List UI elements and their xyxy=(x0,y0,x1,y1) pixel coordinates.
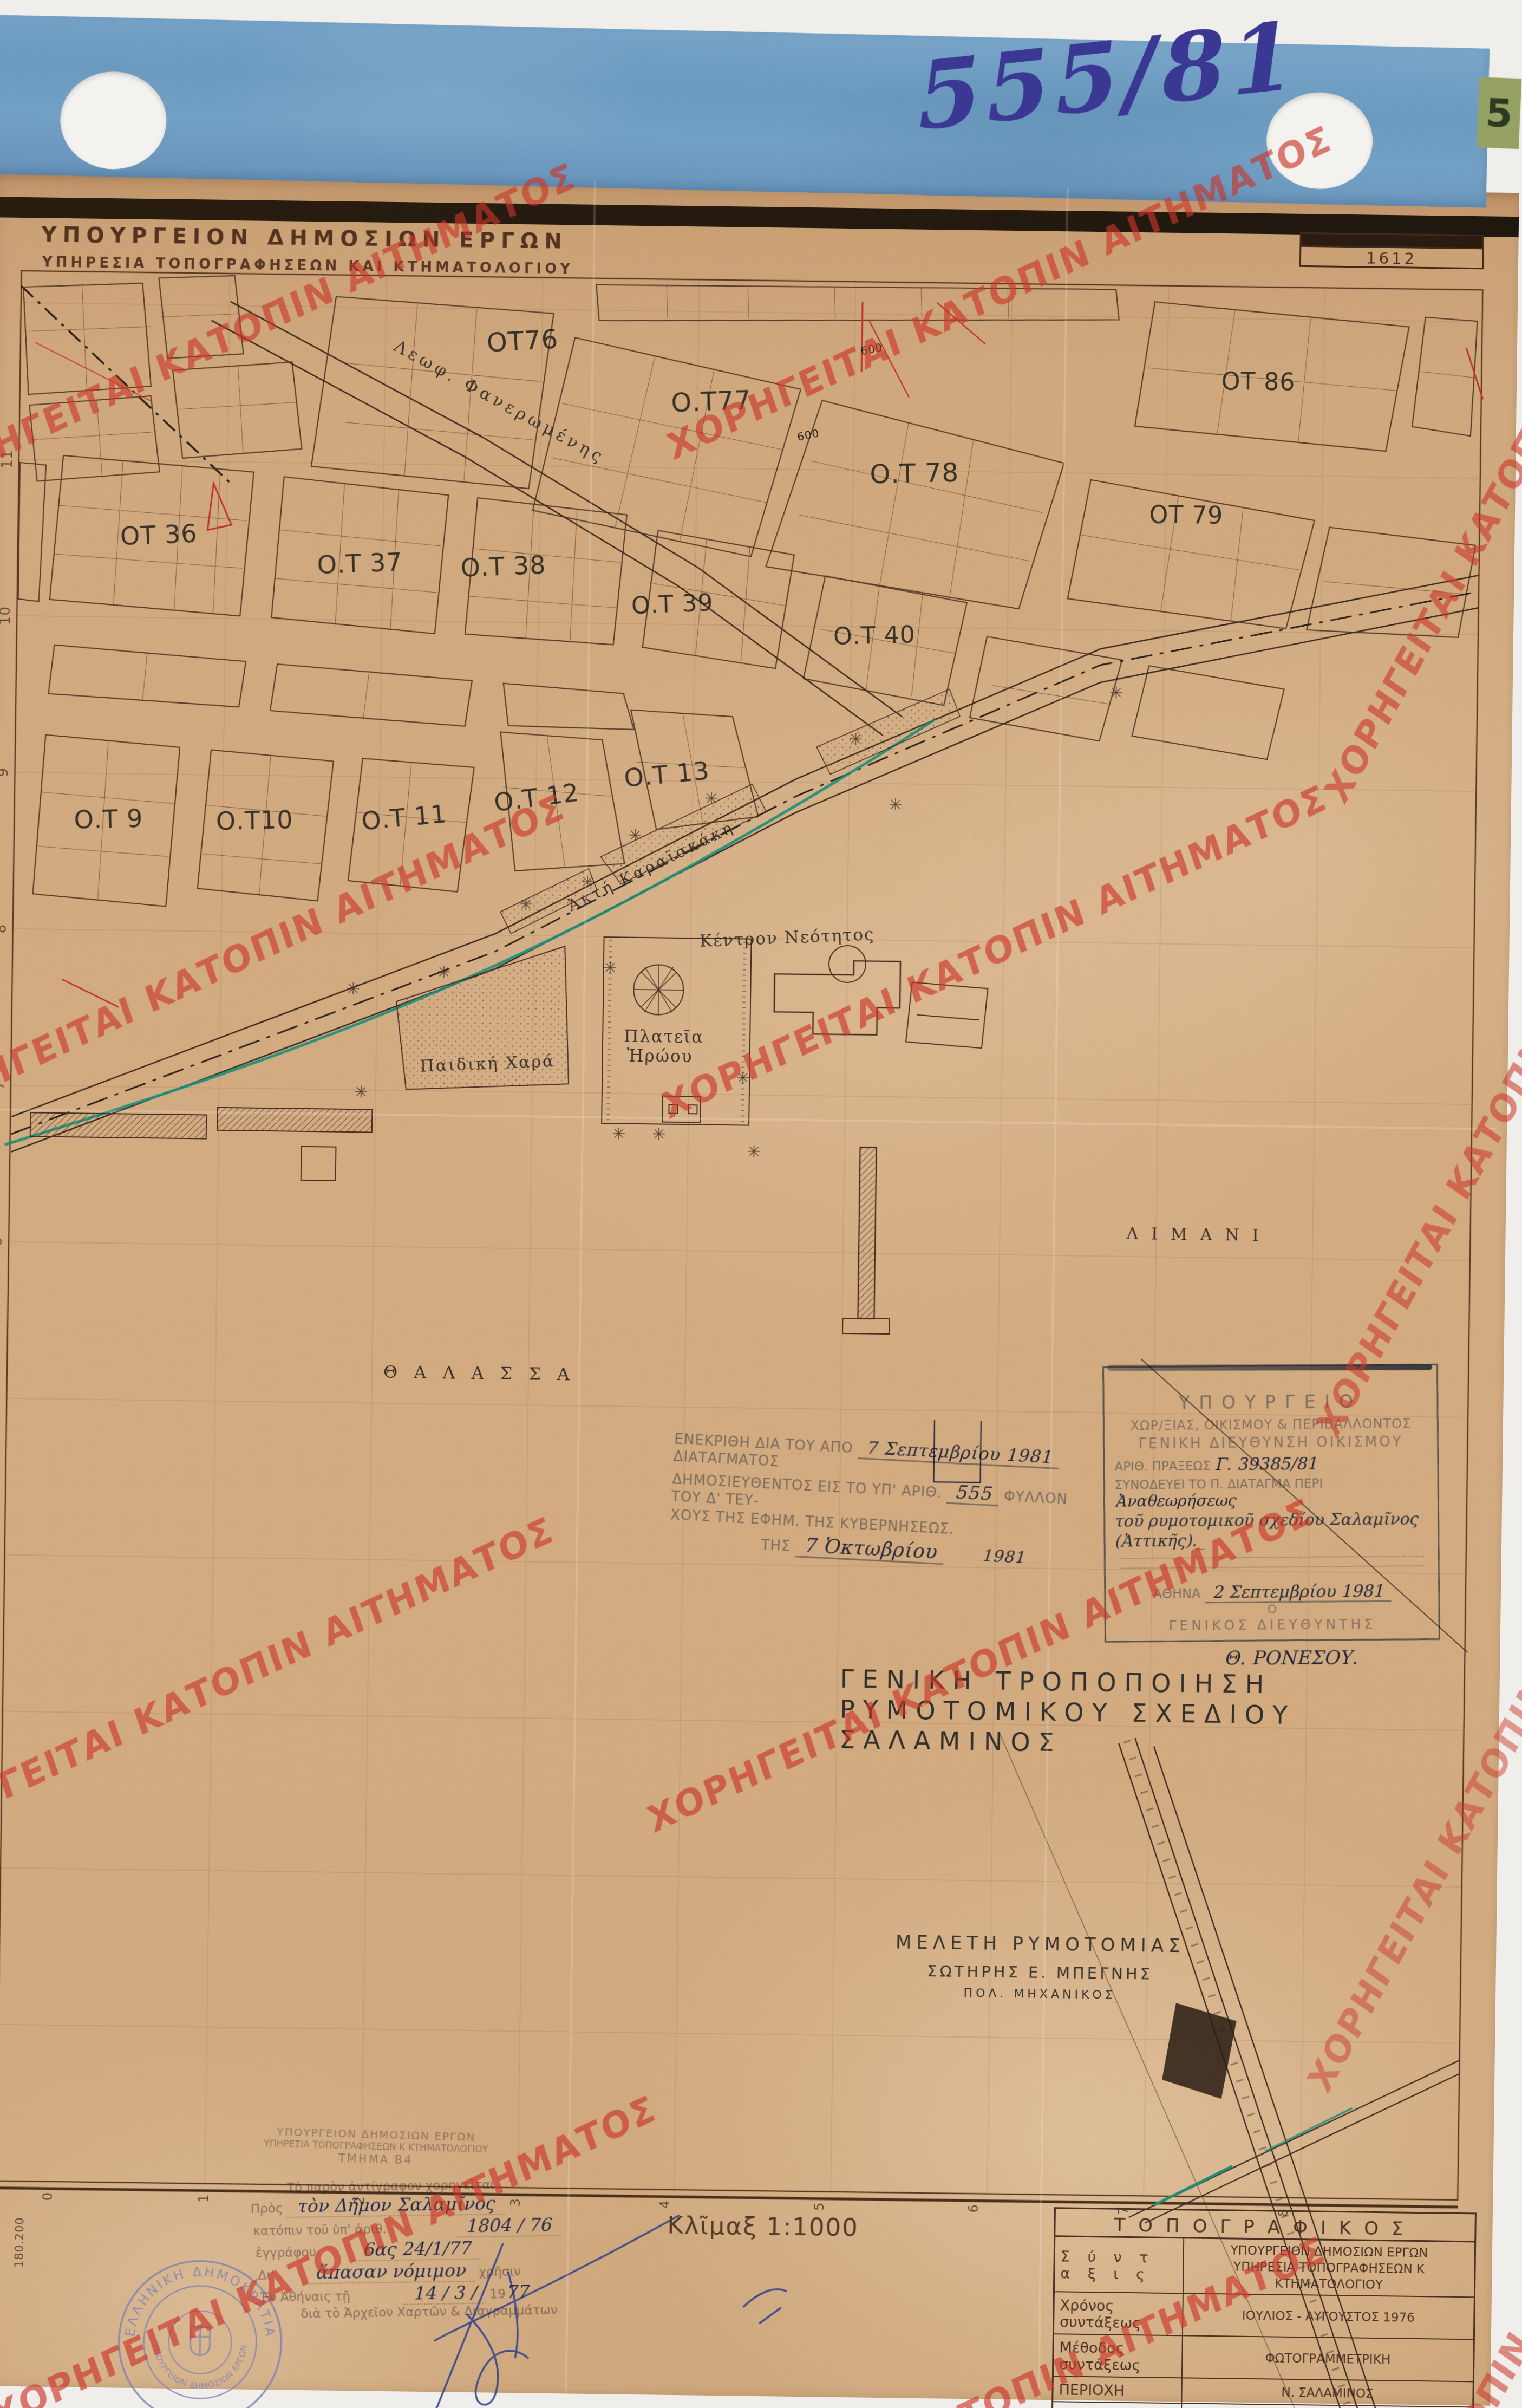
approval-stamp: ΕΝΕΚΡΙΘΗ ΔΙΑ ΤΟΥ ΑΠΟ 7 Σεπτεμβρίου 1981 … xyxy=(669,1427,1086,1572)
grid-number-left: 4 xyxy=(0,1550,1,1559)
grid-number-left: 8 xyxy=(0,924,9,934)
stamp-title: ΥΠΟΥΡΓΕΙΟ xyxy=(1104,1390,1436,1414)
table-row-label: Χρόνος συντάξεως xyxy=(1054,2292,1184,2335)
handwritten-gazette-number: 555 xyxy=(946,1480,1000,1506)
director-signature: Θ. ΡΟΝΕΣΟΥ. xyxy=(1224,1646,1357,1669)
grid-number-left: 11 xyxy=(0,450,15,468)
handwritten-date: 14 / 3 / xyxy=(403,2282,486,2305)
map-paper xyxy=(0,173,1519,2406)
grid-number-left: 7 xyxy=(0,1081,7,1090)
block-label: Ο.Τ 78 xyxy=(870,457,959,490)
block-label: Ο.Τ 9 xyxy=(74,804,143,835)
table-row: Σ ύ ν τ α ξ ι ςΥΠΟΥΡΓΕΙΟΝ ΔΗΜΟΣΙΩΝ ΕΡΓΩΝ… xyxy=(1055,2237,1474,2298)
form-text: Δι' xyxy=(258,2268,274,2282)
form-text: Πρὸς xyxy=(251,2201,283,2216)
form-text: ἐγγράφου xyxy=(256,2245,316,2260)
scanned-map-document: 555/81 5 ΥΠΟΥΡΓΕΙΟΝ ΔΗΜΟΣΙΩΝ ΕΡΓΩΝ ΥΠΗΡΕ… xyxy=(0,0,1522,2408)
stamp-city-label: ΑΘΗΝΑ xyxy=(1153,1586,1201,1602)
hole-punch-left-icon xyxy=(59,70,167,170)
form-text: 19 xyxy=(489,2287,506,2301)
sheet-code-box: 1612 xyxy=(1299,232,1484,269)
block-label: Ο.Τ 38 xyxy=(460,550,546,583)
place-label: ΛΙΜΑΝΙ xyxy=(1126,1223,1271,1245)
stamp-label: ΣΥΝΟΔΕΥΕΙ ΤΟ Π. ΔΙΑΤΑΓΜΑ ΠΕΡΙ xyxy=(1115,1476,1323,1492)
grid-number-left: 9 xyxy=(0,767,11,777)
stamp-article: Ο xyxy=(1106,1601,1438,1617)
stamp-line: ΧΩΡ/ΞΙΑΣ, ΟΙΚΙΣΜΟΥ & ΠΕΡΙΒΑΛΛΟΝΤΟΣ xyxy=(1105,1416,1437,1434)
table-row-value: ΙΟΥΛΙΟΣ - ΑΥΓΟΥΣΤΟΣ 1976 xyxy=(1183,2294,1474,2339)
table-row-label: ΠΕΡΙΟΧΗ xyxy=(1053,2377,1183,2403)
handwritten-subject: (Ἀττικῆς)._ xyxy=(1105,1529,1438,1551)
place-label: Πλατεῖα xyxy=(624,1026,704,1047)
info-table: ΤΟΠΟΓΡΑΦΙΚΟΣ ΧΑΡΤΗΣ Σ ύ ν τ α ξ ι ςΥΠΟΥΡ… xyxy=(1051,2207,1477,2408)
handwritten-stamp-date: 2 Σεπτεμβρίου 1981 xyxy=(1205,1581,1391,1604)
table-row: Μέθοδος συντάξεωςΦΩΤΟΓΡΑΜΜΕΤΡΙΚΗ xyxy=(1054,2334,1473,2382)
corner-tab: 5 xyxy=(1477,77,1521,149)
grid-number-bottom: 0 xyxy=(40,2192,55,2201)
engineer-name: ΣΩΤΗΡΗΣ Ε. ΜΠΕΓΝΗΣ xyxy=(812,1960,1267,1984)
form-text: Τὸ παρὸν ἀντίγραφον χορηγεῖται xyxy=(287,2177,494,2195)
corner-tab-number: 5 xyxy=(1485,90,1514,136)
handwritten-recipient: τὸν Δῆμον Σαλαμῖνος xyxy=(286,2192,504,2218)
grid-number-bottom: 6 xyxy=(966,2204,981,2213)
coordinate-label: 180.200 xyxy=(12,2217,26,2268)
grid-number-left: 6 xyxy=(0,1237,5,1247)
form-text: Ἐν Ἀθήναις τῇ xyxy=(260,2289,350,2304)
department-stamp: ΥΠΟΥΡΓΕΙΟΝ ΔΗΜΟΣΙΩΝ ΕΡΓΩΝ ΥΠΗΡΕΣΙΑ ΤΟΠΟΓ… xyxy=(262,2125,490,2169)
block-label: ΟΤ 86 xyxy=(1221,367,1296,395)
handwritten-subject: τοῦ ρυμοτομικοῦ σχεδίου Σαλαμῖνος xyxy=(1105,1509,1438,1531)
stamp-director-label: ΓΕΝΙΚΟΣ ΔΙΕΥΘΥΝΤΗΣ xyxy=(1106,1616,1439,1634)
grid-number-bottom: 5 xyxy=(812,2202,827,2211)
block-label: Ο.Τ 39 xyxy=(631,588,714,619)
block-label: Ο.Τ77 xyxy=(670,385,752,418)
table-row-label: Σ ύ ν τ α ξ ι ς xyxy=(1055,2237,1184,2293)
map-title-block: ΓΕΝΙΚΗ ΤΡΟΠΟΠΟΙΗΣΗ ΡΥΜΟΤΟΜΙΚΟΥ ΣΧΕΔΙΟΥ Σ… xyxy=(839,1664,1297,1761)
stamp-text: ΤΗΣ xyxy=(761,1537,791,1554)
form-text: χρῆσιν xyxy=(479,2264,521,2279)
place-label: Ἡρώου xyxy=(627,1046,693,1066)
ministry-stamp-box: ΥΠΟΥΡΓΕΙΟ ΧΩΡ/ΞΙΑΣ, ΟΙΚΙΣΜΟΥ & ΠΕΡΙΒΑΛΛΟ… xyxy=(1102,1364,1440,1643)
block-label: ΟΤ76 xyxy=(486,323,559,357)
table-row-label: Μέθοδος συντάξεως xyxy=(1054,2334,1183,2377)
place-label: ΘΑΛΑΣΣΑ xyxy=(383,1362,586,1385)
block-label: ΟΤ 36 xyxy=(120,519,198,551)
copy-release-note: Τὸ παρὸν ἀντίγραφον χορηγεῖται Πρὸς τὸν … xyxy=(218,2173,794,2323)
grid-number-left: 10 xyxy=(0,606,14,625)
document-sheet: 555/81 5 ΥΠΟΥΡΓΕΙΟΝ ΔΗΜΟΣΙΩΝ ΕΡΓΩΝ ΥΠΗΡΕ… xyxy=(0,6,1522,2408)
block-label: ΟΤ 79 xyxy=(1149,500,1223,529)
handwritten-year: 1981 xyxy=(981,1546,1025,1567)
block-label: Ο.Τ10 xyxy=(216,805,294,836)
ink-smear xyxy=(1107,1364,1432,1371)
grid-number-left: 5 xyxy=(0,1393,3,1403)
map-title-line: ΣΑΛΑΜΙΝΟΣ xyxy=(839,1724,1296,1761)
stamp-label: ΑΡΙΘ. ΠΡΑΞΕΩΣ xyxy=(1114,1459,1210,1473)
handwritten-praxis-number: Γ. 39385/81 xyxy=(1214,1454,1317,1474)
stamp-line: ΓΕΝΙΚΗ ΔΙΕΥΘΥΝΣΗ ΟΙΚΙΣΜΟΥ xyxy=(1105,1433,1437,1452)
handwritten-subject: Ἀναθεωρήσεως xyxy=(1115,1491,1236,1511)
handwritten-year: 77 xyxy=(505,2281,528,2302)
table-row-value: ΥΠΟΥΡΓΕΙΟΝ ΔΗΜΟΣΙΩΝ ΕΡΓΩΝ ΥΠΗΡΕΣΙΑ ΤΟΠΟΓ… xyxy=(1184,2238,1474,2296)
sheet-code: 1612 xyxy=(1301,247,1482,269)
handwritten-date: 6ας 24/1/77 xyxy=(352,2237,480,2261)
form-text: κατόπιν τοῦ ὑπ' ἀριθ. xyxy=(253,2222,387,2238)
grid-number-bottom: 1 xyxy=(196,2194,211,2203)
table-row: Χρόνος συντάξεωςΙΟΥΛΙΟΣ - ΑΥΓΟΥΣΤΟΣ 1976 xyxy=(1054,2292,1474,2340)
info-table-rows: Σ ύ ν τ α ξ ι ςΥΠΟΥΡΓΕΙΟΝ ΔΗΜΟΣΙΩΝ ΕΡΓΩΝ… xyxy=(1053,2237,1475,2408)
form-text: διὰ τὸ Ἀρχεῖον Χαρτῶν & Διαγραμμάτων xyxy=(301,2303,557,2321)
block-label: Ο.Τ 37 xyxy=(317,547,403,580)
block-label: Ο.Τ 40 xyxy=(833,620,916,649)
table-row-value: Ν. ΣΑΛΑΜΙΝΟΣ xyxy=(1182,2378,1473,2406)
handwritten-number: 1804 / 76 xyxy=(455,2214,561,2237)
handwritten-use: ἅπασαν νόμιμον xyxy=(305,2260,475,2285)
study-credit-block: ΜΕΛΕΤΗ ΡΥΜΟΤΟΜΙΑΣ ΣΩΤΗΡΗΣ Ε. ΜΠΕΓΝΗΣ ΠΟΛ… xyxy=(812,1930,1268,2003)
table-row-value: ΦΩΤΟΓΡΑΜΜΕΤΡΙΚΗ xyxy=(1183,2336,1473,2381)
